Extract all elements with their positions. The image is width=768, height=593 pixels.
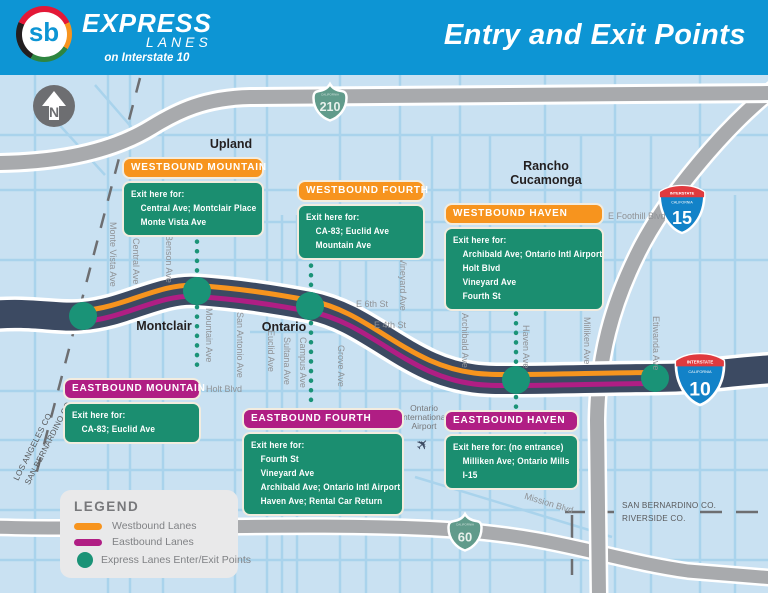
legend-row-exit-points: Express Lanes Enter/Exit Points — [74, 552, 226, 568]
callout-westbound-mountain: WESTBOUND MOUNTAIN Exit here for: Centra… — [122, 157, 264, 237]
sb-express-lanes-logo: sb EXPRESS LANES on Interstate 10 — [16, 6, 212, 64]
svg-text:CALIFORNIA: CALIFORNIA — [456, 523, 474, 527]
svg-text:CALIFORNIA: CALIFORNIA — [688, 369, 712, 374]
callout-body: Exit here for: Archibald Ave; Ontario In… — [444, 227, 604, 311]
svg-text:Airport: Airport — [411, 421, 437, 431]
street-e-foothill: E Foothill Blvd — [608, 211, 666, 221]
callout-body: Exit here for: Central Ave; Montclair Pl… — [122, 181, 264, 237]
page: sb EXPRESS LANES on Interstate 10 Entry … — [0, 0, 768, 593]
callout-eastbound-fourth: EASTBOUND FOURTH Exit here for: Fourth S… — [242, 408, 404, 516]
svg-text:SAN BERNARDINO CO.: SAN BERNARDINO CO. — [622, 501, 716, 510]
callout-title: WESTBOUND HAVEN — [444, 203, 604, 225]
legend-row-eastbound: Eastbound Lanes — [74, 536, 226, 548]
page-title: Entry and Exit Points — [444, 19, 746, 52]
exit-point-monte-vista — [69, 302, 97, 330]
city-cucamonga: Cucamonga — [510, 173, 583, 187]
westbound-lane-swatch — [74, 523, 102, 530]
exit-point-haven — [502, 366, 530, 394]
street-vineyard: Vineyard Ave — [398, 258, 408, 311]
sb-logo-ring-icon: sb — [16, 6, 72, 62]
street-central: Central Ave — [131, 238, 141, 284]
legend: LEGEND Westbound Lanes Eastbound Lanes E… — [60, 490, 238, 578]
street-campus: Campus Ave — [298, 337, 308, 388]
street-holt: Holt Blvd — [206, 384, 242, 394]
callout-title: EASTBOUND FOURTH — [242, 408, 404, 430]
svg-text:10: 10 — [689, 378, 711, 400]
svg-text:CALIFORNIA: CALIFORNIA — [671, 201, 693, 205]
callout-title: EASTBOUND HAVEN — [444, 410, 579, 432]
svg-text:CALIFORNIA: CALIFORNIA — [321, 93, 339, 97]
eastbound-lane-swatch — [74, 539, 102, 546]
logo-express-word: EXPRESS — [82, 10, 212, 36]
callout-westbound-fourth: WESTBOUND FOURTH Exit here for: CA-83; E… — [297, 180, 425, 260]
street-milliken: Milliken Ave — [582, 317, 592, 364]
city-upland: Upland — [210, 137, 252, 151]
callout-westbound-haven: WESTBOUND HAVEN Exit here for: Archibald… — [444, 203, 604, 311]
street-e-6th: E 6th St — [356, 299, 389, 309]
street-monte-vista: Monte Vista Ave — [108, 222, 118, 287]
city-montclair: Montclair — [136, 319, 192, 333]
north-arrow-icon: N — [33, 85, 75, 127]
street-archibald: Archibald Ave — [460, 313, 470, 368]
callout-body: Exit here for: CA-83; Euclid Ave Mountai… — [297, 204, 425, 260]
header-bar: sb EXPRESS LANES on Interstate 10 Entry … — [0, 0, 768, 75]
svg-text:210: 210 — [320, 100, 341, 114]
svg-text:INTERSTATE: INTERSTATE — [670, 191, 695, 196]
street-euclid: Euclid Ave — [266, 330, 276, 372]
legend-title: LEGEND — [74, 499, 226, 514]
svg-text:INTERSTATE: INTERSTATE — [687, 360, 714, 365]
street-etiwanda: Etiwanda Ave — [651, 316, 661, 370]
svg-text:60: 60 — [458, 530, 472, 545]
callout-body: Exit here for: (no entrance) Milliken Av… — [444, 434, 579, 490]
sb-logo: sb — [22, 12, 67, 57]
logo-wordmark: EXPRESS LANES on Interstate 10 — [82, 10, 212, 64]
svg-text:N: N — [49, 104, 59, 120]
svg-text:RIVERSIDE CO.: RIVERSIDE CO. — [622, 514, 686, 523]
callout-eastbound-mountain: EASTBOUND MOUNTAIN Exit here for: CA-83;… — [63, 378, 201, 444]
callout-title: WESTBOUND FOURTH — [297, 180, 425, 202]
legend-row-westbound: Westbound Lanes — [74, 520, 226, 532]
logo-tagline: on Interstate 10 — [82, 52, 212, 64]
map-area: CALIFORNIA 210 CALIFORNIA 60 INTERSTATE … — [0, 75, 768, 593]
svg-text:15: 15 — [672, 208, 692, 228]
street-e-4th: E 4th St — [374, 320, 407, 330]
street-haven: Haven Ave — [521, 325, 531, 368]
street-sultana: Sultana Ave — [282, 337, 292, 385]
street-grove: Grove Ave — [336, 345, 346, 387]
callout-eastbound-haven: EASTBOUND HAVEN Exit here for: (no entra… — [444, 410, 579, 490]
street-san-antonio: San Antonio Ave — [235, 312, 245, 378]
callout-body: Exit here for: CA-83; Euclid Ave — [63, 402, 201, 444]
callout-title: WESTBOUND MOUNTAIN — [122, 157, 264, 179]
callout-title: EASTBOUND MOUNTAIN — [63, 378, 201, 400]
exit-point-swatch — [77, 552, 93, 568]
street-mountain: Mountain Ave — [204, 308, 214, 362]
exit-point-campus — [296, 292, 324, 320]
street-benson: Benson Ave — [164, 235, 174, 283]
city-rancho: Rancho — [523, 159, 569, 173]
callout-body: Exit here for: Fourth St Vineyard Ave Ar… — [242, 432, 404, 516]
exit-point-mountain — [183, 277, 211, 305]
